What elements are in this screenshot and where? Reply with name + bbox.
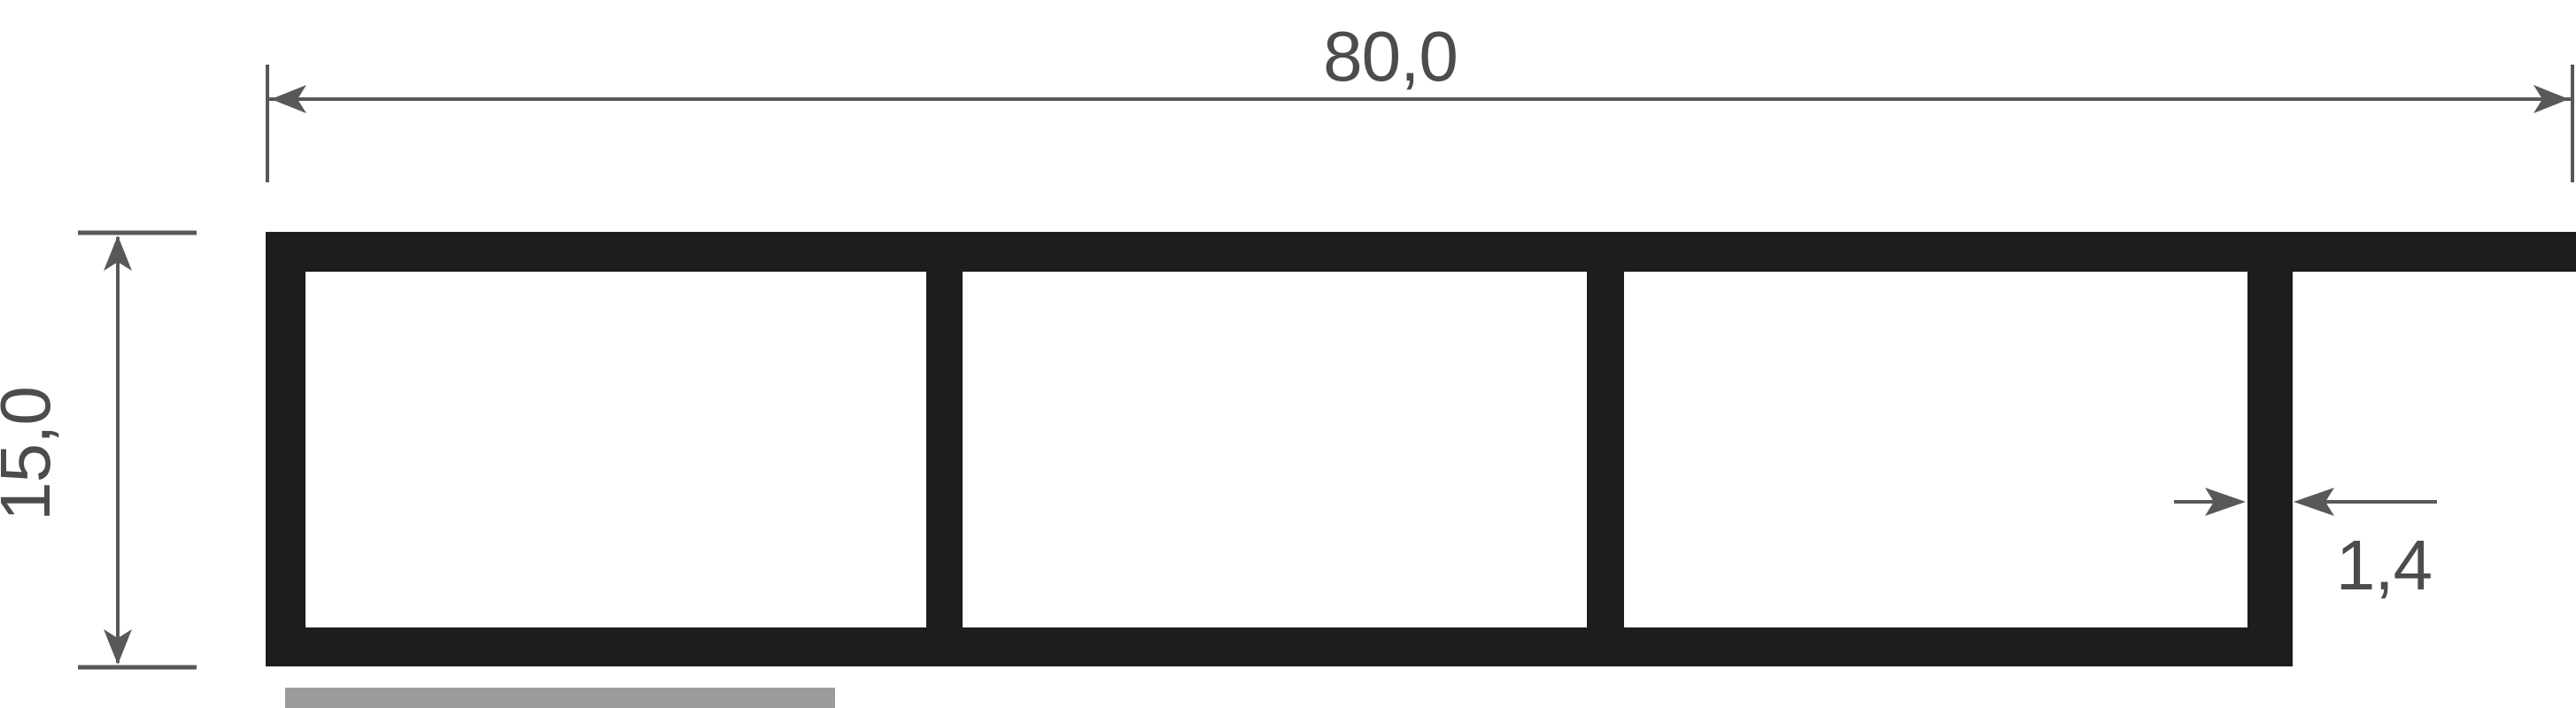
width-dimension-label: 80,0 bbox=[1323, 17, 1458, 96]
width-dimension: 80,0 bbox=[267, 17, 2572, 182]
thickness-dimension: 1,4 bbox=[2174, 488, 2437, 604]
profile-web-2 bbox=[1587, 272, 1624, 627]
profile-cross-section bbox=[266, 232, 2576, 666]
thickness-dimension-label: 1,4 bbox=[2336, 526, 2432, 604]
height-dimension-label: 15,0 bbox=[0, 387, 65, 521]
profile-web-1 bbox=[926, 272, 963, 627]
drawing-canvas: 80,0 15,0 1,4 bbox=[0, 0, 2576, 708]
profile-drawing: 80,0 15,0 1,4 bbox=[0, 0, 2576, 708]
profile-top-flange bbox=[266, 232, 2576, 272]
gray-bar bbox=[285, 688, 835, 708]
height-dimension: 15,0 bbox=[0, 233, 197, 667]
profile-web-3 bbox=[2247, 272, 2293, 666]
profile-left-wall bbox=[266, 232, 306, 666]
profile-bottom-flange bbox=[266, 627, 2293, 666]
